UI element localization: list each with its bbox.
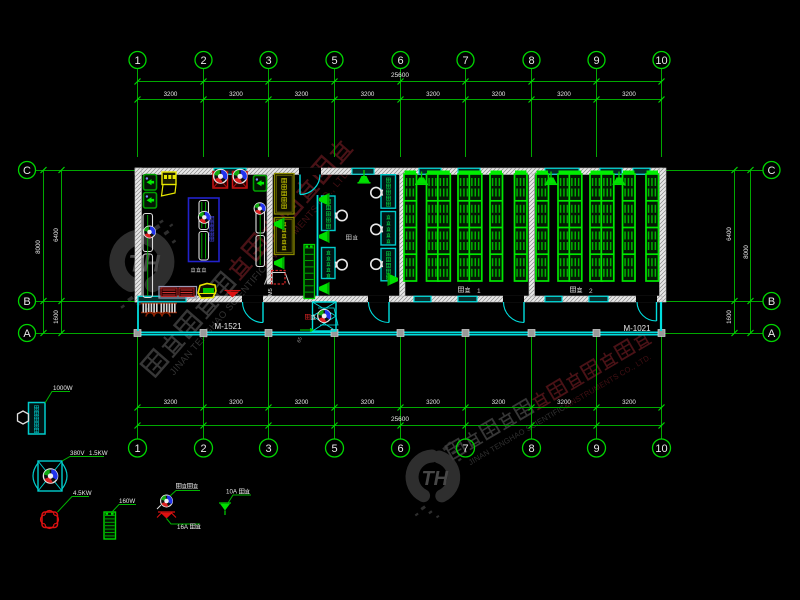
svg-text:6400: 6400 [53,228,60,242]
svg-text:8000: 8000 [743,245,750,259]
svg-text:M-1021: M-1021 [623,324,651,333]
svg-text:2: 2 [200,443,206,455]
svg-text:C: C [768,165,776,177]
svg-text:1: 1 [477,288,481,295]
svg-text:2: 2 [200,55,206,67]
svg-text:3200: 3200 [622,399,636,406]
svg-text:1.5KW: 1.5KW [89,450,108,457]
svg-text:A: A [23,328,31,340]
svg-text:1000W: 1000W [53,385,73,392]
svg-text:3200: 3200 [426,399,440,406]
svg-text:B: B [768,296,775,308]
svg-text:3: 3 [265,55,271,67]
svg-text:6: 6 [397,55,403,67]
svg-text:4.5KW: 4.5KW [73,490,92,497]
svg-text:3200: 3200 [229,399,243,406]
svg-text:9: 9 [593,443,599,455]
svg-text:8: 8 [528,55,534,67]
svg-text:C: C [23,165,31,177]
svg-text:3: 3 [265,443,271,455]
svg-text:6: 6 [397,443,403,455]
svg-text:7: 7 [462,443,468,455]
svg-text:3200: 3200 [492,399,506,406]
svg-text:1: 1 [134,55,140,67]
svg-text:3200: 3200 [295,399,309,406]
svg-text:10: 10 [655,443,667,455]
svg-text:160W: 160W [119,498,135,505]
svg-text:10A: 10A [226,489,238,496]
svg-text:9: 9 [593,55,599,67]
svg-text:B: B [23,296,30,308]
svg-text:3200: 3200 [229,91,243,98]
svg-text:3200: 3200 [492,91,506,98]
svg-text:8000: 8000 [35,240,42,254]
svg-text:3200: 3200 [361,399,375,406]
svg-text:3200: 3200 [557,399,571,406]
svg-text:25600: 25600 [391,72,409,79]
svg-text:M5: M5 [268,288,274,296]
svg-text:10: 10 [655,55,667,67]
svg-text:3200: 3200 [164,399,178,406]
svg-text:TH: TH [421,468,448,490]
svg-text:2: 2 [589,288,593,295]
svg-text:1: 1 [134,443,140,455]
svg-text:3200: 3200 [361,91,375,98]
svg-text:6400: 6400 [726,227,733,241]
svg-text:A: A [768,328,776,340]
svg-text:7: 7 [462,55,468,67]
svg-text:25600: 25600 [391,416,409,423]
svg-text:1600: 1600 [53,310,60,324]
svg-text:380V: 380V [70,450,85,457]
svg-text:5: 5 [331,55,337,67]
svg-text:16A: 16A [177,524,189,531]
svg-text:3200: 3200 [295,91,309,98]
svg-text:3200: 3200 [557,91,571,98]
svg-text:3200: 3200 [622,91,636,98]
svg-text:5: 5 [331,443,337,455]
svg-text:3200: 3200 [164,91,178,98]
svg-text:M-1521: M-1521 [214,322,242,331]
svg-text:3200: 3200 [426,91,440,98]
svg-text:8: 8 [528,443,534,455]
svg-text:1600: 1600 [726,310,733,324]
